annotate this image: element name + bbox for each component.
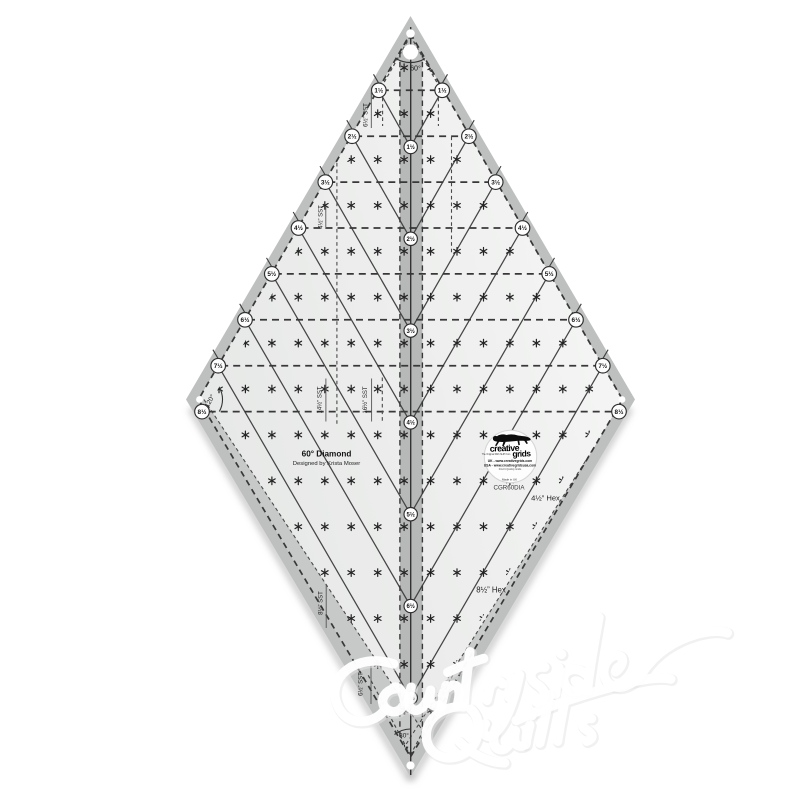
svg-text:2½: 2½ (348, 132, 358, 140)
svg-text:6½” SST: 6½” SST (358, 672, 365, 696)
svg-text:8½: 8½ (198, 408, 208, 416)
svg-text:4½” Hex: 4½” Hex (531, 494, 560, 503)
svg-text:2½: 2½ (407, 236, 415, 243)
svg-text:1½: 1½ (407, 144, 415, 151)
svg-text:30°: 30° (399, 732, 409, 740)
svg-text:3½: 3½ (491, 178, 501, 186)
svg-text:6½” SST: 6½” SST (363, 103, 370, 127)
svg-text:1½: 1½ (374, 87, 384, 95)
svg-text:6½: 6½ (407, 603, 415, 610)
svg-text:16½” SST: 16½” SST (362, 386, 369, 413)
svg-text:6½: 6½ (241, 316, 251, 324)
svg-text:Made in UK: Made in UK (502, 478, 517, 482)
svg-text:7½: 7½ (214, 362, 224, 370)
svg-text:1½: 1½ (438, 87, 448, 95)
svg-text:5½: 5½ (545, 270, 555, 278)
svg-text:5½: 5½ (267, 270, 277, 278)
svg-text:Designed by Krista Moser: Designed by Krista Moser (293, 461, 360, 467)
svg-text:7½: 7½ (598, 362, 608, 370)
svg-text:6½: 6½ (572, 316, 582, 324)
svg-text:Find It Quickly Grids: Find It Quickly Grids (499, 468, 522, 471)
svg-text:5½: 5½ (407, 511, 415, 518)
svg-text:4½” SST: 4½” SST (318, 205, 325, 229)
svg-text:3½: 3½ (407, 328, 415, 335)
svg-text:60° Diamond: 60° Diamond (302, 450, 352, 459)
svg-text:USA - www.creativegridsusa.com: USA - www.creativegridsusa.com (484, 463, 536, 467)
svg-text:2½: 2½ (464, 132, 474, 140)
svg-text:4½: 4½ (294, 224, 304, 232)
svg-text:CGR60DIA: CGR60DIA (494, 485, 526, 492)
svg-text:60°: 60° (410, 64, 421, 73)
svg-text:4½: 4½ (407, 420, 415, 427)
svg-text:8½” SST: 8½” SST (318, 591, 325, 615)
svg-text:4½: 4½ (518, 224, 528, 232)
svg-text:14½” SST: 14½” SST (317, 386, 324, 413)
svg-text:grids: grids (512, 448, 531, 459)
svg-text:8½” Hex: 8½” Hex (476, 586, 506, 595)
svg-text:UK - www.creativegrids.com: UK - www.creativegrids.com (488, 459, 532, 463)
svg-text:The Original With SLIP from: The Original With SLIP from (482, 453, 511, 456)
svg-text:8½: 8½ (615, 408, 625, 416)
svg-text:3½: 3½ (321, 178, 331, 186)
